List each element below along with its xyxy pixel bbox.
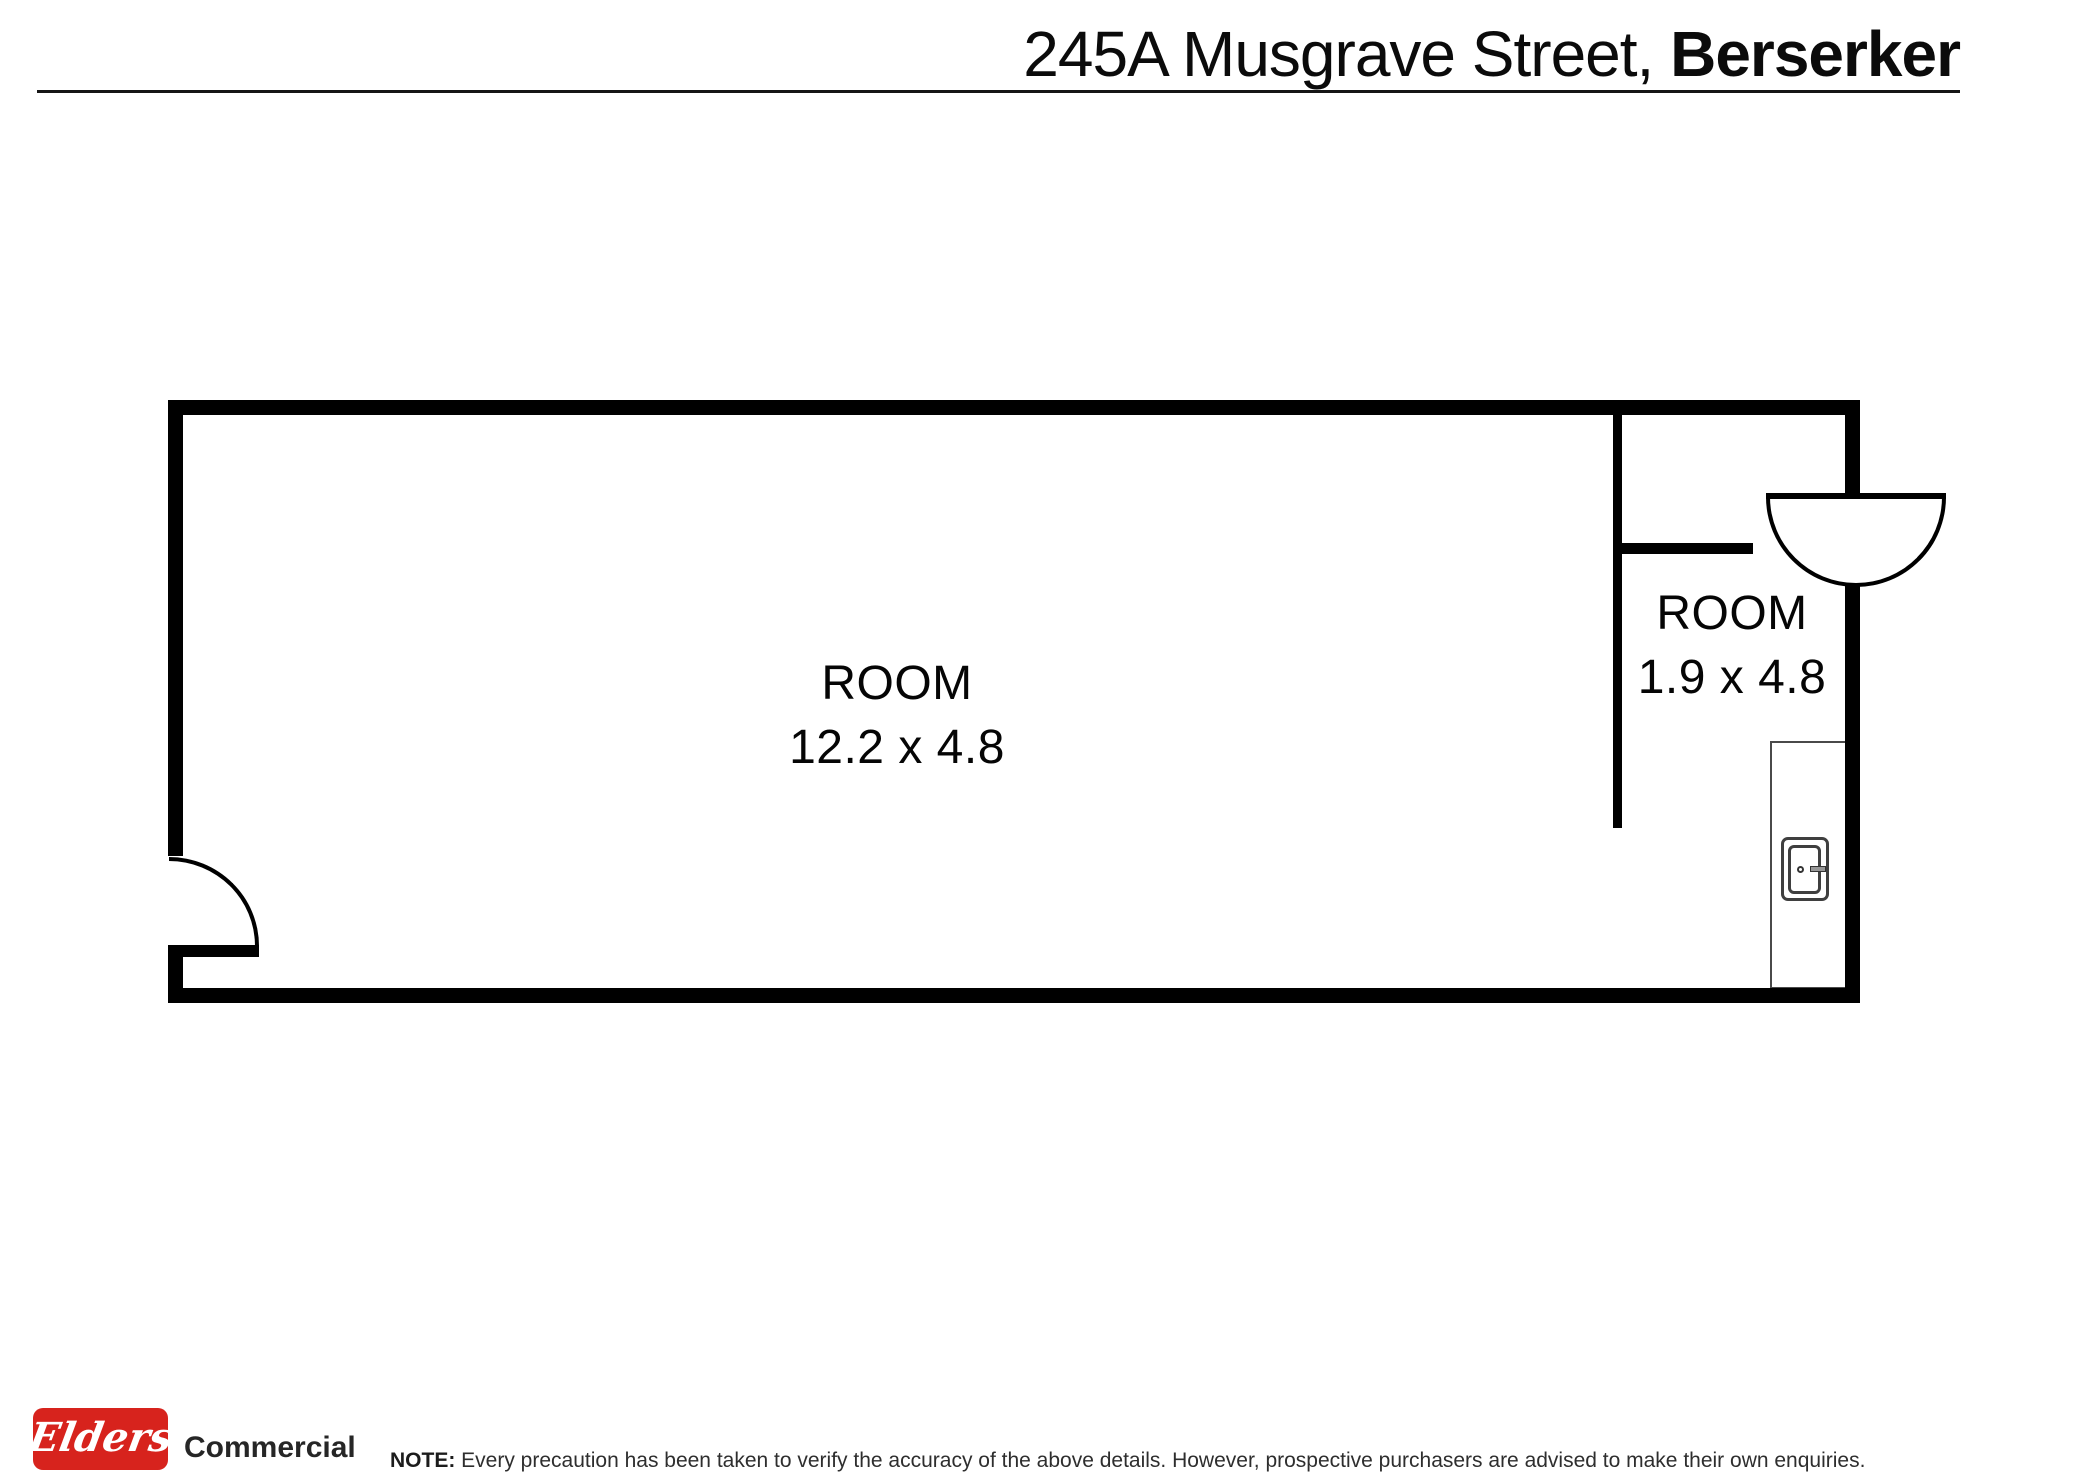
- meter-box-handle-icon: [1810, 866, 1826, 872]
- wall-door-stub: [183, 945, 259, 957]
- disclaimer-note: NOTE: Every precaution has been taken to…: [390, 1449, 1865, 1473]
- wall-right-upper: [1845, 400, 1860, 493]
- meter-box-knob-icon: [1797, 866, 1804, 873]
- logo-subtext: Commercial: [184, 1431, 356, 1465]
- header-rule: [37, 90, 1960, 93]
- door-swing-half-arc-icon: [1766, 493, 1946, 587]
- wall-left-lower: [168, 945, 183, 1003]
- small-room-name: ROOM: [1532, 582, 1932, 646]
- wall-interior-horizontal: [1622, 543, 1753, 554]
- address-street: 245A Musgrave Street,: [1023, 18, 1670, 90]
- elders-logo-text: Elders: [25, 1414, 177, 1465]
- elders-logo: Elders: [33, 1408, 168, 1470]
- address-suburb: Berserker: [1670, 18, 1960, 90]
- main-room-label: ROOM 12.2 x 4.8: [647, 652, 1147, 780]
- meter-box-icon: [1781, 837, 1829, 901]
- door-swing-arc-icon: [169, 857, 259, 946]
- note-body: Every precaution has been taken to verif…: [455, 1449, 1865, 1472]
- small-room-label: ROOM 1.9 x 4.8: [1532, 582, 1932, 710]
- wall-left-upper: [168, 400, 183, 856]
- wall-bottom: [168, 988, 1860, 1003]
- small-room-dimensions: 1.9 x 4.8: [1532, 646, 1932, 710]
- wall-top: [168, 400, 1860, 415]
- main-room-name: ROOM: [647, 652, 1147, 716]
- note-label: NOTE:: [390, 1449, 455, 1472]
- main-room-dimensions: 12.2 x 4.8: [647, 716, 1147, 780]
- page-title: 245A Musgrave Street, Berserker: [1023, 22, 1960, 86]
